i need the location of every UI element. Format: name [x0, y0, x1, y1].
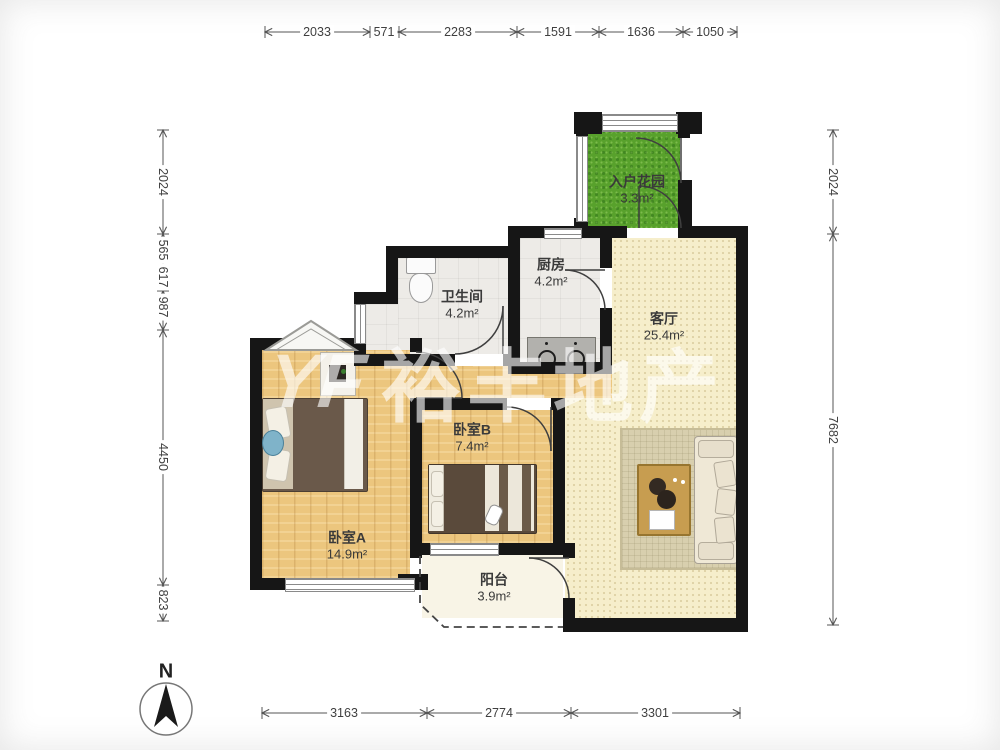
label-living-room: 客厅 25.4m² — [644, 309, 684, 344]
dim-right-1: 2024 — [826, 165, 840, 199]
stool-icon — [262, 430, 284, 456]
door-arc-balcony — [529, 558, 569, 598]
dim-top-1: 2033 — [300, 25, 334, 39]
dimension-lines-right — [827, 130, 839, 625]
dim-top-5: 1636 — [624, 25, 658, 39]
room-area: 4.2m² — [441, 306, 483, 323]
room-name: 厨房 — [534, 255, 567, 273]
dim-left-1: 2024 — [156, 165, 170, 199]
room-name: 阳台 — [477, 570, 510, 588]
label-bedroom-a: 卧室A 14.9m² — [327, 528, 367, 563]
door-arc-bedroom-b — [507, 407, 551, 451]
dim-bottom-1: 3163 — [327, 706, 361, 720]
dimension-lines-top — [265, 26, 737, 38]
north-arrow-icon — [140, 683, 192, 735]
label-bedroom-b: 卧室B 7.4m² — [453, 420, 491, 455]
door-arc-kitchen — [565, 270, 605, 310]
room-area: 4.2m² — [534, 274, 567, 291]
room-name: 卫生间 — [441, 287, 483, 305]
dim-left-2: 565 — [156, 237, 170, 264]
dim-top-6: 1050 — [693, 25, 727, 39]
room-name: 客厅 — [644, 309, 684, 327]
dim-top-2: 571 — [371, 25, 398, 39]
room-area: 25.4m² — [644, 328, 684, 345]
label-balcony: 阳台 3.9m² — [477, 570, 510, 605]
dimension-lines-left — [157, 130, 169, 621]
room-name: 卧室B — [453, 420, 491, 438]
floorplan-canvas: 入户花园 3.3m² 厨房 4.2m² 卫生间 4.2m² 客厅 25.4m² … — [0, 0, 1000, 750]
door-arc-bedroom-a — [416, 352, 462, 398]
room-area: 7.4m² — [453, 439, 491, 456]
dim-left-3: 617 — [156, 264, 170, 291]
dim-left-4: 987 — [156, 294, 170, 321]
label-entry-garden: 入户花园 3.3m² — [609, 172, 665, 207]
dim-top-3: 2283 — [441, 25, 475, 39]
room-name: 入户花园 — [609, 172, 665, 190]
dim-right-2: 7682 — [826, 413, 840, 447]
room-name: 卧室A — [327, 528, 367, 546]
room-area: 14.9m² — [327, 547, 367, 564]
dim-top-4: 1591 — [541, 25, 575, 39]
room-area: 3.9m² — [477, 589, 510, 606]
north-label: N — [159, 661, 173, 684]
label-kitchen: 厨房 4.2m² — [534, 255, 567, 290]
dim-left-5: 4450 — [156, 440, 170, 474]
dim-bottom-3: 3301 — [638, 706, 672, 720]
dim-bottom-2: 2774 — [482, 706, 516, 720]
dim-left-6: 823 — [156, 587, 170, 614]
plan-overlay — [0, 0, 1000, 750]
label-bathroom: 卫生间 4.2m² — [441, 287, 483, 322]
room-area: 3.3m² — [609, 191, 665, 208]
bay-window — [266, 321, 356, 350]
